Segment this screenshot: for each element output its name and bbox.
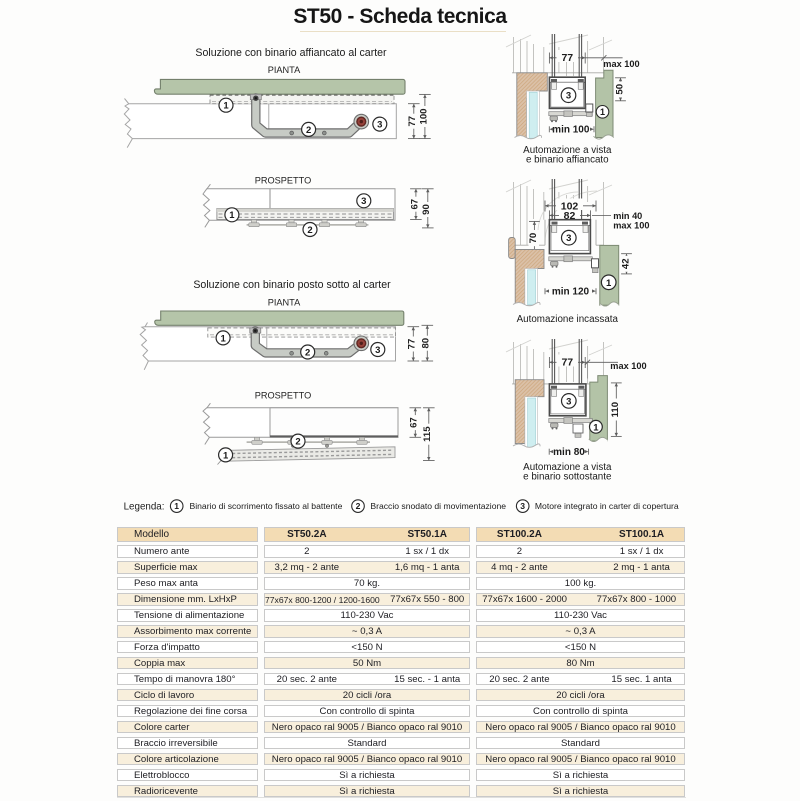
- svg-text:77: 77: [561, 52, 573, 64]
- svg-text:1: 1: [174, 501, 179, 511]
- svg-text:42: 42: [620, 258, 631, 269]
- svg-text:90: 90: [421, 204, 432, 215]
- svg-text:Automazione incassata: Automazione incassata: [517, 314, 619, 325]
- svg-text:Motore integrato in carter di: Motore integrato in carter di copertura: [535, 501, 679, 511]
- svg-text:3: 3: [375, 345, 380, 356]
- svg-text:1: 1: [606, 278, 612, 289]
- svg-text:Legenda:: Legenda:: [124, 501, 165, 512]
- svg-text:70: 70: [528, 233, 539, 244]
- svg-text:Braccio snodato di movimentazi: Braccio snodato di movimentazione: [370, 501, 506, 511]
- svg-text:Soluzione con binario posto so: Soluzione con binario posto sotto al car…: [193, 279, 391, 291]
- svg-text:115: 115: [422, 426, 433, 442]
- svg-text:77: 77: [407, 116, 418, 127]
- svg-text:PROSPETTO: PROSPETTO: [255, 176, 312, 186]
- svg-text:3: 3: [377, 120, 382, 131]
- svg-text:3: 3: [566, 396, 571, 407]
- svg-text:77: 77: [407, 339, 418, 350]
- svg-text:2: 2: [295, 437, 300, 448]
- svg-text:e binario affiancato: e binario affiancato: [526, 154, 609, 165]
- svg-text:3: 3: [566, 91, 571, 102]
- svg-text:50: 50: [614, 84, 625, 95]
- svg-text:2: 2: [305, 347, 310, 358]
- svg-text:min 100: min 100: [552, 125, 590, 136]
- svg-text:1: 1: [229, 210, 235, 221]
- svg-text:3: 3: [566, 233, 571, 244]
- svg-text:2: 2: [306, 125, 311, 136]
- svg-text:1: 1: [223, 101, 229, 112]
- svg-text:max 100: max 100: [603, 59, 639, 69]
- svg-text:1: 1: [220, 333, 226, 344]
- svg-text:100: 100: [418, 108, 429, 124]
- svg-text:2: 2: [356, 501, 361, 511]
- svg-text:1: 1: [600, 107, 605, 117]
- svg-text:Binario di scorrimento fissato: Binario di scorrimento fissato al batten…: [190, 501, 343, 511]
- svg-text:2: 2: [307, 225, 312, 236]
- svg-text:1: 1: [593, 422, 599, 433]
- svg-text:3: 3: [361, 196, 366, 207]
- svg-text:PIANTA: PIANTA: [268, 298, 301, 308]
- svg-text:80: 80: [421, 338, 432, 349]
- svg-text:77: 77: [561, 357, 573, 369]
- svg-text:Soluzione con binario affianca: Soluzione con binario affiancato al cart…: [195, 47, 387, 59]
- svg-text:PIANTA: PIANTA: [268, 65, 301, 75]
- svg-text:min 80: min 80: [553, 447, 585, 458]
- svg-text:110: 110: [610, 402, 621, 417]
- svg-text:PROSPETTO: PROSPETTO: [255, 391, 312, 401]
- svg-text:1: 1: [223, 450, 229, 461]
- svg-text:3: 3: [520, 501, 525, 511]
- svg-text:67: 67: [409, 417, 420, 428]
- svg-text:max 100: max 100: [613, 220, 649, 230]
- svg-text:min 120: min 120: [552, 287, 590, 298]
- svg-text:e binario sottostante: e binario sottostante: [523, 472, 612, 483]
- svg-text:67: 67: [409, 199, 420, 210]
- svg-text:min 40: min 40: [613, 211, 642, 221]
